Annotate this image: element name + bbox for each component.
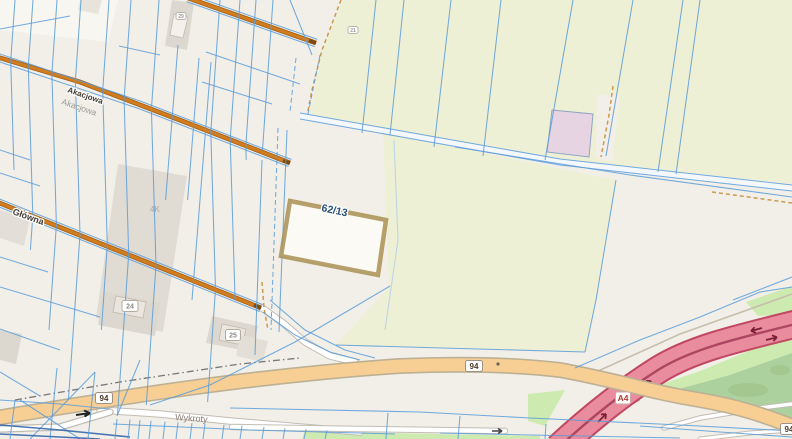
svg-text:94: 94	[100, 394, 109, 403]
svg-text:21: 21	[350, 28, 356, 34]
svg-text:29: 29	[178, 14, 184, 20]
svg-text:94: 94	[470, 362, 479, 371]
svg-text:24: 24	[126, 304, 134, 311]
svg-text:94: 94	[785, 425, 792, 434]
svg-text:4K: 4K	[150, 205, 160, 214]
svg-text:A4: A4	[618, 393, 629, 403]
svg-text:25: 25	[229, 333, 237, 340]
